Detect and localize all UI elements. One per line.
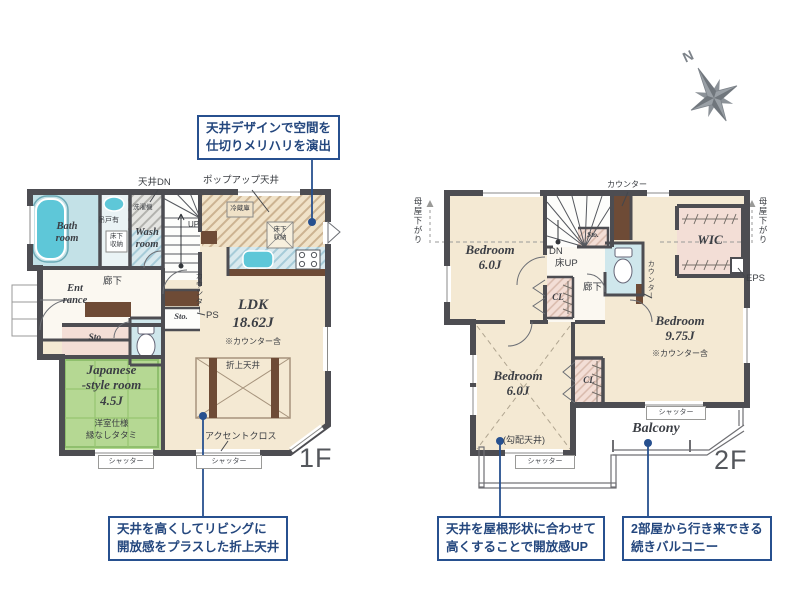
label-accent-cross: アクセントクロス bbox=[205, 431, 277, 442]
room-storage-small: Sto. bbox=[163, 311, 199, 321]
label-underfloor-wash: 床下 収納 bbox=[106, 233, 127, 248]
stove-icon bbox=[296, 250, 320, 269]
label-popup-ceiling: ポップアップ天井 bbox=[203, 175, 279, 186]
room-bedroom1: Bedroom 6.0J bbox=[450, 242, 530, 273]
label-eps: EPS bbox=[746, 273, 765, 284]
eps-box bbox=[731, 258, 744, 273]
label-sloped-ceiling: (勾配天井) bbox=[503, 435, 545, 446]
label-hallway-1f: 廊下 bbox=[103, 276, 122, 287]
shutter-1f-left: シャッター bbox=[98, 455, 154, 469]
label-oriage-ceiling: 折上天井 bbox=[196, 360, 290, 370]
sink-icon bbox=[104, 197, 124, 211]
label-underfloor-kitchen: 床下 収納 bbox=[267, 226, 293, 241]
floor-plan-drawing bbox=[0, 0, 800, 600]
label-counter-note-1f: ※カウンター含 bbox=[213, 337, 293, 346]
label-up: UP bbox=[188, 220, 199, 229]
floor2-label: 2F bbox=[714, 445, 748, 477]
label-japanese-note2: 縁なしタタミ bbox=[62, 430, 161, 440]
callout-ceiling-design: 天井デザインで空間を 仕切りメリハリを演出 bbox=[197, 115, 340, 160]
label-dn-2f: DN bbox=[549, 246, 563, 257]
room-bedroom2: Bedroom 9.75J bbox=[638, 313, 722, 344]
label-moya-left: 母屋下がり bbox=[413, 197, 423, 245]
room-japanese: Japanese -style room 4.5J bbox=[62, 362, 161, 408]
toilet-icon bbox=[137, 325, 155, 358]
shutter-2f-right: シャッター bbox=[646, 406, 706, 420]
kitchen-sink-icon bbox=[243, 251, 273, 268]
porch-steps bbox=[12, 285, 38, 336]
room-bath: Bath room bbox=[40, 221, 94, 246]
room-wic: WIC bbox=[683, 232, 737, 247]
label-hallway-2f: 廊下 bbox=[583, 282, 602, 293]
label-counter-2f-right: カウンター bbox=[646, 260, 654, 300]
label-balcony: Balcony bbox=[625, 421, 687, 438]
label-closet1: CL bbox=[547, 292, 569, 303]
label-moya-right: 母屋下がり bbox=[758, 197, 768, 245]
room-wash: Wash room bbox=[126, 227, 168, 252]
label-hanging-cabinet: 吊戸有 bbox=[98, 217, 119, 225]
compass-rose-icon bbox=[673, 55, 752, 137]
label-counter-note-2f: ※カウンター含 bbox=[638, 349, 722, 358]
shutter-2f-bottom: シャッター bbox=[515, 455, 575, 469]
label-floor-up: 床UP bbox=[555, 258, 578, 269]
room-entrance: Ent rance bbox=[50, 283, 100, 308]
room-storage-2f: Sto. bbox=[578, 231, 608, 240]
callout-coffered-ceiling: 天井を高くしてリビングに 開放感をプラスした折上天井 bbox=[108, 516, 288, 561]
room-storage-pink: Sto. bbox=[62, 333, 130, 344]
label-counter-2f-top: カウンター bbox=[607, 180, 647, 189]
label-closet2: CL bbox=[575, 375, 603, 386]
callout-sloped-ceiling: 天井を屋根形状に合わせて 高くすることで開放感UP bbox=[437, 516, 605, 561]
label-japanese-note1: 洋室仕様 bbox=[62, 418, 161, 428]
label-refrigerator: 冷蔵庫 bbox=[227, 205, 253, 213]
room-bedroom3: Bedroom 6.0J bbox=[478, 368, 558, 399]
callout-balcony: 2部屋から行き来できる 続きバルコニー bbox=[622, 516, 772, 561]
label-ceiling-dn: 天井DN bbox=[138, 177, 171, 188]
floor-plan-page: 天井DN ポップアップ天井 Bath room 吊戸有 床下 収納 洗濯機 Wa… bbox=[0, 0, 800, 600]
floor1-label: 1F bbox=[299, 443, 333, 475]
toilet-icon-2f bbox=[614, 248, 632, 283]
room-ldk: LDK 18.62J bbox=[213, 297, 293, 332]
shutter-1f-right: シャッター bbox=[196, 455, 262, 469]
label-counter-1f: カウンター bbox=[194, 272, 203, 315]
label-washing-machine: 洗濯機 bbox=[133, 204, 153, 212]
